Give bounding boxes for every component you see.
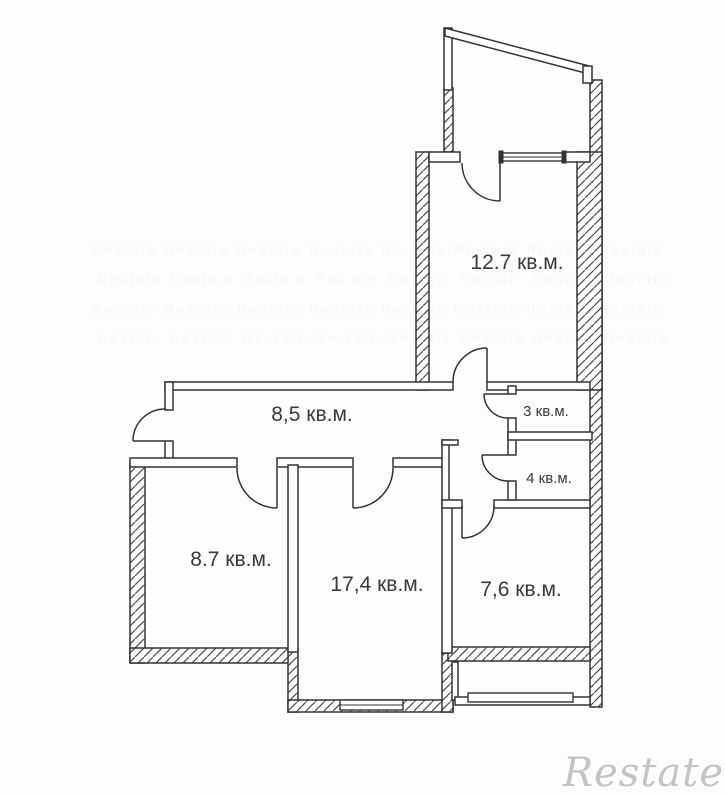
- hall-top-wall: [165, 382, 453, 390]
- window-frame-tick: [499, 151, 503, 163]
- room-label-12-7: 12.7 кв.м.: [470, 251, 563, 274]
- bedroom-top-wall-left: [429, 152, 460, 162]
- room-label-7-6: 7,6 кв.м.: [480, 578, 561, 601]
- wc4-door: [482, 455, 508, 481]
- wc3-door: [484, 394, 508, 418]
- wc-wall-seg1: [508, 386, 516, 394]
- wall-balcony-left-lower: [444, 88, 453, 152]
- floor-plan-screenshot: Restate Restate Restate Restate Restate …: [0, 0, 725, 795]
- divider-87-174: [288, 465, 298, 652]
- balcony-right-corner: [583, 66, 592, 83]
- room-label-17-4: 17,4 кв.м.: [330, 573, 423, 596]
- hall-bottom-wall-right: [393, 458, 448, 467]
- balcony-slanted-railing: [445, 28, 589, 74]
- hall-bottom-wall-left: [130, 458, 237, 467]
- wall-bedroom-left: [416, 152, 429, 390]
- bedroom-top-wall-right: [565, 152, 590, 162]
- floor-plan-drawing: Restate Restate Restate Restate Restate …: [0, 0, 725, 795]
- loggia-left-edge: [452, 662, 458, 700]
- corridor-left-wall-cap: [442, 440, 458, 445]
- room174-door: [353, 468, 393, 508]
- hall-left-wall-upper: [165, 382, 173, 410]
- balcony-top: [444, 28, 592, 90]
- room-label-8-7: 8.7 кв.м.: [190, 548, 271, 571]
- wc-wall-seg3: [508, 481, 516, 500]
- room-label-4: 4 кв.м.: [526, 470, 572, 487]
- wall-right-thick-bedroom: [577, 152, 602, 390]
- wall-left-outer: [130, 462, 145, 663]
- window-frame-tick: [562, 151, 566, 163]
- doors: [133, 163, 508, 538]
- exterior-walls: [130, 80, 602, 712]
- bay-window-group: [340, 700, 403, 710]
- wall-bottom-left-room: [130, 648, 297, 663]
- loggia-bottom: [452, 662, 590, 705]
- room-label-8-5: 8,5 кв.м.: [271, 403, 352, 426]
- wall-bottom-right-room: [448, 647, 590, 661]
- room-label-3: 3 кв.м.: [523, 403, 569, 420]
- divider-wc3-wc4: [508, 432, 592, 440]
- divider-174-76: [442, 506, 452, 653]
- room76-door: [462, 506, 494, 538]
- room76-top-wall-right: [494, 500, 590, 508]
- loggia-window: [468, 693, 573, 702]
- entrance-door: [133, 409, 165, 441]
- room87-door: [237, 468, 277, 508]
- balcony-door: [462, 163, 500, 201]
- room76-top-wall-left: [442, 500, 462, 508]
- bedroom-door: [453, 348, 487, 382]
- corridor-left-wall: [442, 440, 449, 506]
- bedroom-bottom-wall-right: [487, 382, 590, 390]
- restate-watermark: Restate: [562, 750, 724, 795]
